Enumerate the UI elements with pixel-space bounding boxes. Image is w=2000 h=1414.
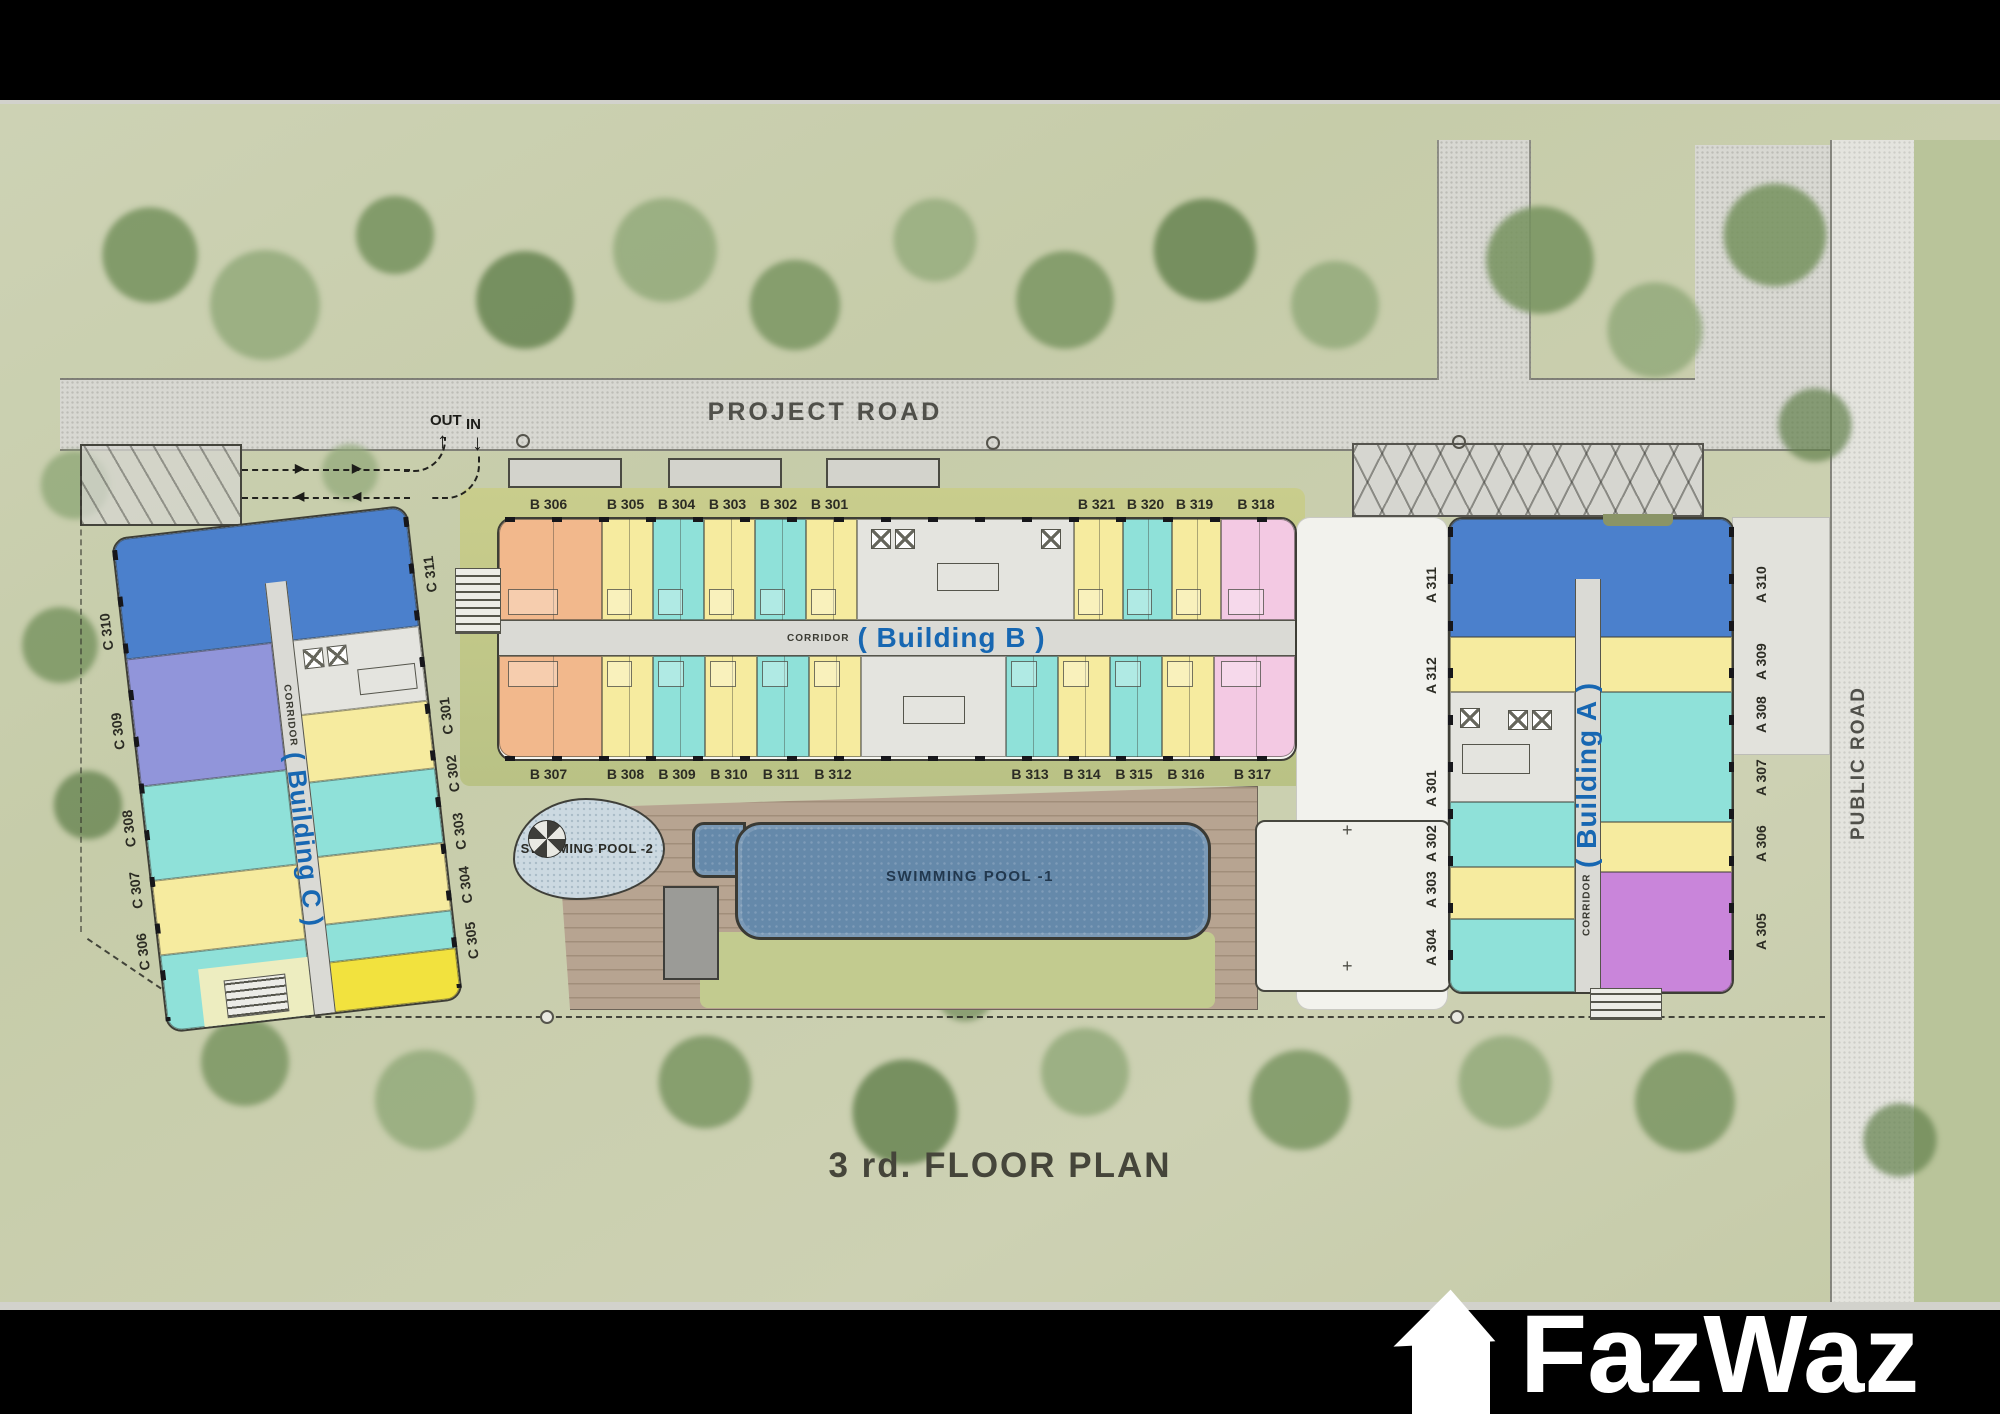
- stair-icon: [903, 696, 965, 724]
- traffic-dash-line-in: [242, 497, 410, 499]
- letterbox-top: [0, 0, 2000, 100]
- label-c307: C 307: [121, 859, 150, 921]
- survey-cross-icon: +: [1342, 956, 1353, 977]
- building-a-name: ( Building A ): [1571, 682, 1603, 868]
- lawn-patch: [700, 932, 1215, 1008]
- project-road-label: PROJECT ROAD: [640, 398, 1010, 427]
- road-planter: [668, 458, 782, 488]
- window-ticks: [1729, 527, 1734, 984]
- unit-b315-label: B 315: [1108, 766, 1160, 782]
- label-a310: A 310: [1750, 555, 1772, 615]
- boundary-marker-icon: [540, 1010, 554, 1024]
- parking-chevron-area: [1352, 443, 1704, 517]
- pavement-top-right: [1695, 145, 1832, 380]
- label-a309: A 309: [1750, 632, 1772, 692]
- building-b-corridor-label: CORRIDOR: [787, 633, 849, 644]
- lift-icon: [1508, 710, 1528, 730]
- label-c301: C 301: [432, 685, 461, 747]
- road-planter: [508, 458, 622, 488]
- unit-b315: [1110, 656, 1162, 757]
- building-b-top-labels: B 306 B 305 B 304 B 303 B 302 B 301 B 32…: [497, 490, 1293, 512]
- unit-a306-block: [1599, 822, 1732, 872]
- building-a-core: [1450, 692, 1575, 802]
- property-boundary-line: [80, 470, 82, 932]
- label-a306: A 306: [1750, 814, 1772, 874]
- label-c303: C 303: [445, 800, 474, 862]
- building-b-west-stair: [455, 568, 501, 634]
- label-a305: A 305: [1750, 902, 1772, 962]
- divider: [0, 100, 2000, 104]
- label-a308: A 308: [1750, 685, 1772, 745]
- lift-icon: [326, 644, 348, 666]
- watermark-house-icon: [1391, 1287, 1496, 1346]
- boundary-marker-icon: [1450, 1010, 1464, 1024]
- out-arrow-icon: ↑: [437, 428, 448, 454]
- building-a-south-stair: [1590, 988, 1662, 1020]
- page-title: 3 rd. FLOOR PLAN: [780, 1146, 1220, 1186]
- pool-pavilion: [663, 886, 719, 980]
- unit-b321: [1074, 519, 1123, 620]
- survey-cross-icon: +: [1342, 820, 1353, 841]
- unit-a308-block: [1599, 692, 1732, 822]
- building-b-bottom-labels: B 307 B 308 B 309 B 310 B 311 B 312 B 31…: [497, 760, 1293, 782]
- unit-b309-label: B 309: [651, 766, 703, 782]
- label-a312: A 312: [1420, 646, 1442, 706]
- unit-b307-label: B 307: [497, 766, 600, 782]
- unit-b308: [602, 656, 653, 757]
- label-c305: C 305: [457, 909, 486, 971]
- label-c308: C 308: [114, 797, 143, 859]
- umbrella-icon: [528, 820, 566, 858]
- label-a303: A 303: [1420, 860, 1442, 920]
- traffic-dash-line-out: [242, 469, 410, 471]
- label-a304: A 304: [1420, 918, 1442, 978]
- unit-b317-label: B 317: [1212, 766, 1293, 782]
- road-planter: [826, 458, 940, 488]
- walkway-right-of-a: [1732, 517, 1830, 755]
- watermark-house-icon: [1412, 1340, 1490, 1414]
- unit-b302: [755, 519, 806, 620]
- label-c311: C 311: [416, 544, 445, 606]
- stair-icon: [937, 563, 999, 591]
- unit-b304-label: B 304: [651, 496, 702, 512]
- entrance-ramp: [80, 444, 242, 526]
- arrow-right-icon: ▶: [295, 461, 304, 475]
- traffic-out-label: OUT: [430, 412, 462, 429]
- arrow-right-icon: ▶: [352, 461, 361, 475]
- building-b: CORRIDOR ( Building B ): [497, 517, 1297, 761]
- unit-b304: [653, 519, 704, 620]
- manhole-icon: [1452, 435, 1466, 449]
- label-a301: A 301: [1420, 759, 1442, 819]
- unit-b306-label: B 306: [497, 496, 600, 512]
- building-a-corridor-text: CORRIDOR ( Building A ): [1558, 639, 1616, 979]
- label-c304: C 304: [451, 854, 480, 916]
- unit-b321-label: B 321: [1072, 496, 1121, 512]
- unit-b306: [499, 519, 602, 620]
- unit-b302-label: B 302: [753, 496, 804, 512]
- unit-b303-label: B 303: [702, 496, 753, 512]
- driveway-stub: [1437, 140, 1531, 380]
- building-a-corridor-label: CORRIDOR: [1582, 874, 1593, 936]
- arrow-left-icon: ◀: [295, 489, 304, 503]
- unit-b310-label: B 310: [703, 766, 755, 782]
- unit-b319: [1172, 519, 1221, 620]
- lift-icon: [871, 529, 891, 549]
- manhole-icon: [986, 436, 1000, 450]
- building-b-top-row: [499, 519, 1295, 620]
- unit-a304-block: [1450, 919, 1575, 992]
- in-arrow-icon: ↓: [472, 430, 483, 456]
- building-c: CORRIDOR ( Building C ) C 310 C 309 C 30…: [111, 505, 463, 1034]
- manhole-icon: [516, 434, 530, 448]
- unit-b317: [1214, 656, 1295, 757]
- watermark-text: FazWaz: [1520, 1300, 1919, 1410]
- unit-b314: [1058, 656, 1110, 757]
- unit-a301-block: [1450, 802, 1575, 867]
- building-a: CORRIDOR ( Building A ): [1448, 517, 1734, 994]
- property-boundary-line: [185, 1016, 1825, 1018]
- label-c306: C 306: [128, 920, 157, 982]
- unit-b311: [757, 656, 809, 757]
- unit-a305-block: [1599, 872, 1732, 992]
- swimming-pool-1-label: SWIMMING POOL -1: [800, 868, 1140, 885]
- unit-b303: [704, 519, 755, 620]
- label-c309: C 309: [103, 700, 132, 762]
- unit-b305: [602, 519, 653, 620]
- unit-b313: [1006, 656, 1058, 757]
- unit-b316: [1162, 656, 1214, 757]
- unit-b313-label: B 313: [1004, 766, 1056, 782]
- lift-icon: [1041, 529, 1061, 549]
- unit-b305-label: B 305: [600, 496, 651, 512]
- building-b-corridor: CORRIDOR ( Building B ): [499, 620, 1295, 656]
- unit-b301: [806, 519, 857, 620]
- unit-b309: [653, 656, 705, 757]
- public-road-label: PUBLIC ROAD: [1848, 630, 1874, 840]
- label-c310: C 310: [92, 601, 121, 663]
- floor-plan-canvas: PROJECT ROAD PUBLIC ROAD OUT IN ↑ ↓ ▶ ▶ …: [0, 0, 2000, 1414]
- unit-b319-label: B 319: [1170, 496, 1219, 512]
- label-a311: A 311: [1420, 555, 1442, 615]
- lift-icon: [1532, 710, 1552, 730]
- stair-icon: [357, 663, 418, 695]
- stair-icon: [1462, 744, 1530, 774]
- building-c-name: ( Building C ): [279, 751, 330, 929]
- stair-icon: [224, 974, 290, 1019]
- building-b-bottom-row: [499, 656, 1295, 757]
- unit-b318-label: B 318: [1219, 496, 1293, 512]
- swimming-pool-2-label: SWIMMING POOL -2: [492, 841, 682, 856]
- unit-b312-label: B 312: [807, 766, 859, 782]
- window-ticks: [1448, 527, 1453, 984]
- unit-b318: [1221, 519, 1295, 620]
- unit-b312: [809, 656, 861, 757]
- building-b-core-lower: [861, 656, 1006, 757]
- unit-b320-label: B 320: [1121, 496, 1170, 512]
- building-b-name: ( Building B ): [857, 622, 1045, 654]
- unit-a302-a303-block: [1450, 867, 1575, 919]
- building-a-entry-notch: [1603, 514, 1673, 526]
- unit-b316-label: B 316: [1160, 766, 1212, 782]
- lift-icon: [1460, 708, 1480, 728]
- unit-b314-label: B 314: [1056, 766, 1108, 782]
- arrow-left-icon: ◀: [352, 489, 361, 503]
- unit-b311-label: B 311: [755, 766, 807, 782]
- building-c-corridor-label: CORRIDOR: [281, 684, 299, 747]
- unit-b307: [499, 656, 602, 757]
- unit-b310: [705, 656, 757, 757]
- unit-b308-label: B 308: [600, 766, 651, 782]
- unit-b320: [1123, 519, 1172, 620]
- building-b-core: [857, 519, 1074, 620]
- label-a307: A 307: [1750, 748, 1772, 808]
- lift-icon: [895, 529, 915, 549]
- green-verge-right: [1914, 140, 2000, 1310]
- window-ticks: [505, 517, 1289, 522]
- unit-b301-label: B 301: [804, 496, 855, 512]
